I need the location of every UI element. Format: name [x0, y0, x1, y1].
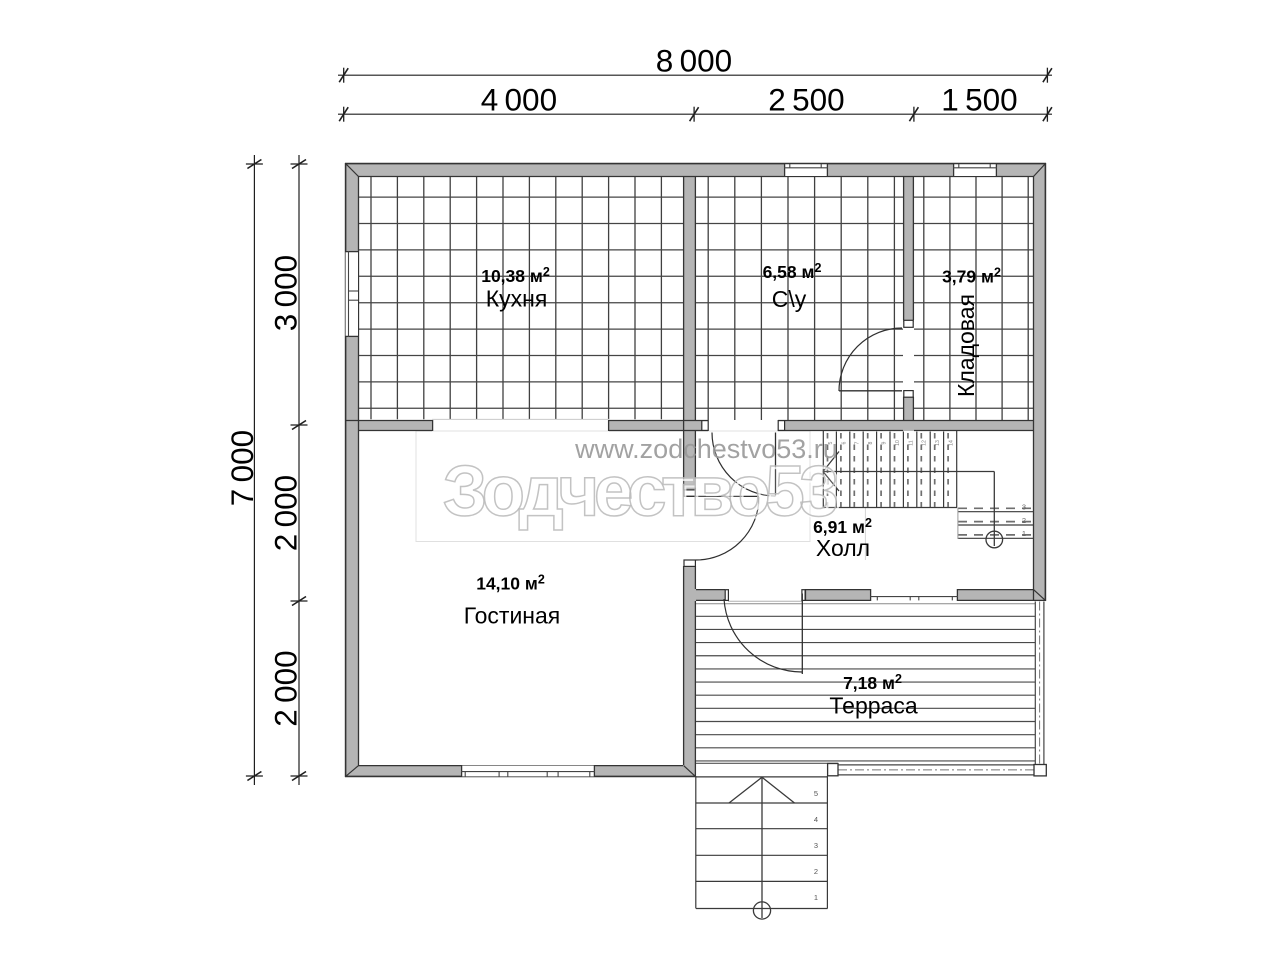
svg-text:1: 1	[814, 893, 818, 902]
svg-text:12: 12	[922, 440, 928, 446]
svg-text:Терраса: Терраса	[829, 693, 917, 719]
svg-text:7: 7	[855, 441, 861, 444]
svg-text:3: 3	[814, 841, 818, 850]
svg-text:2: 2	[814, 867, 818, 876]
svg-text:14,10 м2: 14,10 м2	[476, 573, 545, 594]
svg-text:С\у: С\у	[772, 286, 807, 312]
svg-text:3: 3	[1022, 503, 1026, 512]
svg-text:8: 8	[868, 441, 874, 444]
svg-text:Холл: Холл	[816, 535, 870, 561]
svg-text:8 000: 8 000	[656, 42, 732, 78]
svg-text:3 000: 3 000	[268, 255, 304, 331]
svg-text:6,58 м2: 6,58 м2	[763, 261, 822, 282]
svg-text:3,79 м2: 3,79 м2	[942, 266, 1001, 287]
svg-text:9: 9	[882, 441, 888, 444]
svg-text:6: 6	[841, 441, 847, 444]
svg-text:2 500: 2 500	[768, 82, 844, 118]
svg-text:Зодчество53: Зодчество53	[443, 453, 837, 532]
svg-text:10,38 м2: 10,38 м2	[481, 265, 550, 286]
svg-text:5: 5	[814, 789, 818, 798]
svg-text:1: 1	[1022, 529, 1026, 538]
svg-text:11: 11	[908, 440, 914, 445]
svg-text:2: 2	[1022, 516, 1026, 525]
svg-text:Кухня: Кухня	[486, 285, 548, 311]
svg-text:7,18 м2: 7,18 м2	[843, 672, 902, 693]
svg-text:7 000: 7 000	[224, 430, 260, 506]
svg-text:2 000: 2 000	[268, 650, 304, 726]
svg-text:10: 10	[895, 440, 901, 446]
svg-text:Гостиная: Гостиная	[464, 603, 561, 629]
svg-text:2 000: 2 000	[268, 475, 304, 551]
svg-text:14: 14	[949, 440, 955, 446]
svg-text:1 500: 1 500	[941, 82, 1017, 118]
svg-text:4 000: 4 000	[481, 82, 557, 118]
svg-text:Кладовая: Кладовая	[953, 294, 979, 397]
svg-text:13: 13	[935, 440, 941, 446]
svg-text:4: 4	[814, 815, 818, 824]
